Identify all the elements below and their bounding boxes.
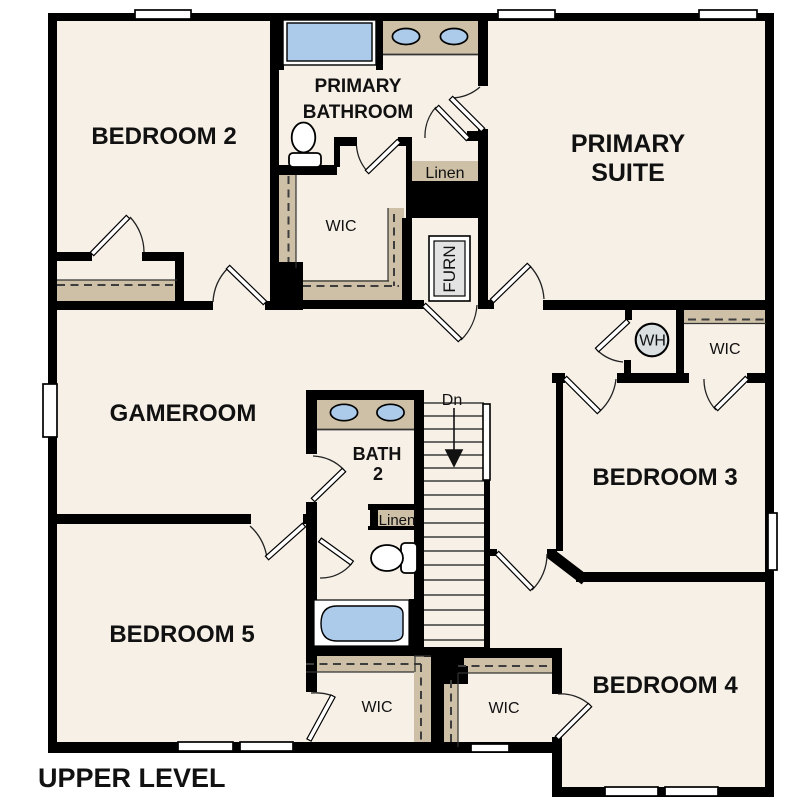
- svg-text:FURN: FURN: [440, 245, 459, 292]
- svg-text:BEDROOM 3: BEDROOM 3: [592, 464, 737, 491]
- svg-text:WH: WH: [639, 333, 666, 350]
- svg-text:GAMEROOM: GAMEROOM: [110, 400, 257, 427]
- svg-text:WIC: WIC: [325, 218, 356, 235]
- svg-text:BEDROOM 4: BEDROOM 4: [592, 672, 738, 699]
- svg-text:WIC: WIC: [488, 700, 519, 717]
- svg-text:Dn: Dn: [442, 392, 462, 409]
- svg-text:BATHROOM: BATHROOM: [303, 102, 413, 123]
- svg-text:SUITE: SUITE: [591, 159, 665, 187]
- svg-text:2: 2: [373, 464, 383, 484]
- svg-text:PRIMARY: PRIMARY: [315, 76, 402, 97]
- svg-text:Linen: Linen: [379, 512, 416, 529]
- svg-text:BEDROOM 2: BEDROOM 2: [91, 123, 236, 150]
- svg-text:BEDROOM 5: BEDROOM 5: [109, 621, 254, 648]
- svg-text:Linen: Linen: [425, 165, 464, 182]
- svg-text:WIC: WIC: [361, 699, 392, 716]
- svg-text:BATH: BATH: [353, 444, 402, 464]
- svg-text:WIC: WIC: [709, 341, 740, 358]
- svg-text:PRIMARY: PRIMARY: [571, 130, 686, 158]
- svg-text:UPPER LEVEL: UPPER LEVEL: [38, 763, 226, 793]
